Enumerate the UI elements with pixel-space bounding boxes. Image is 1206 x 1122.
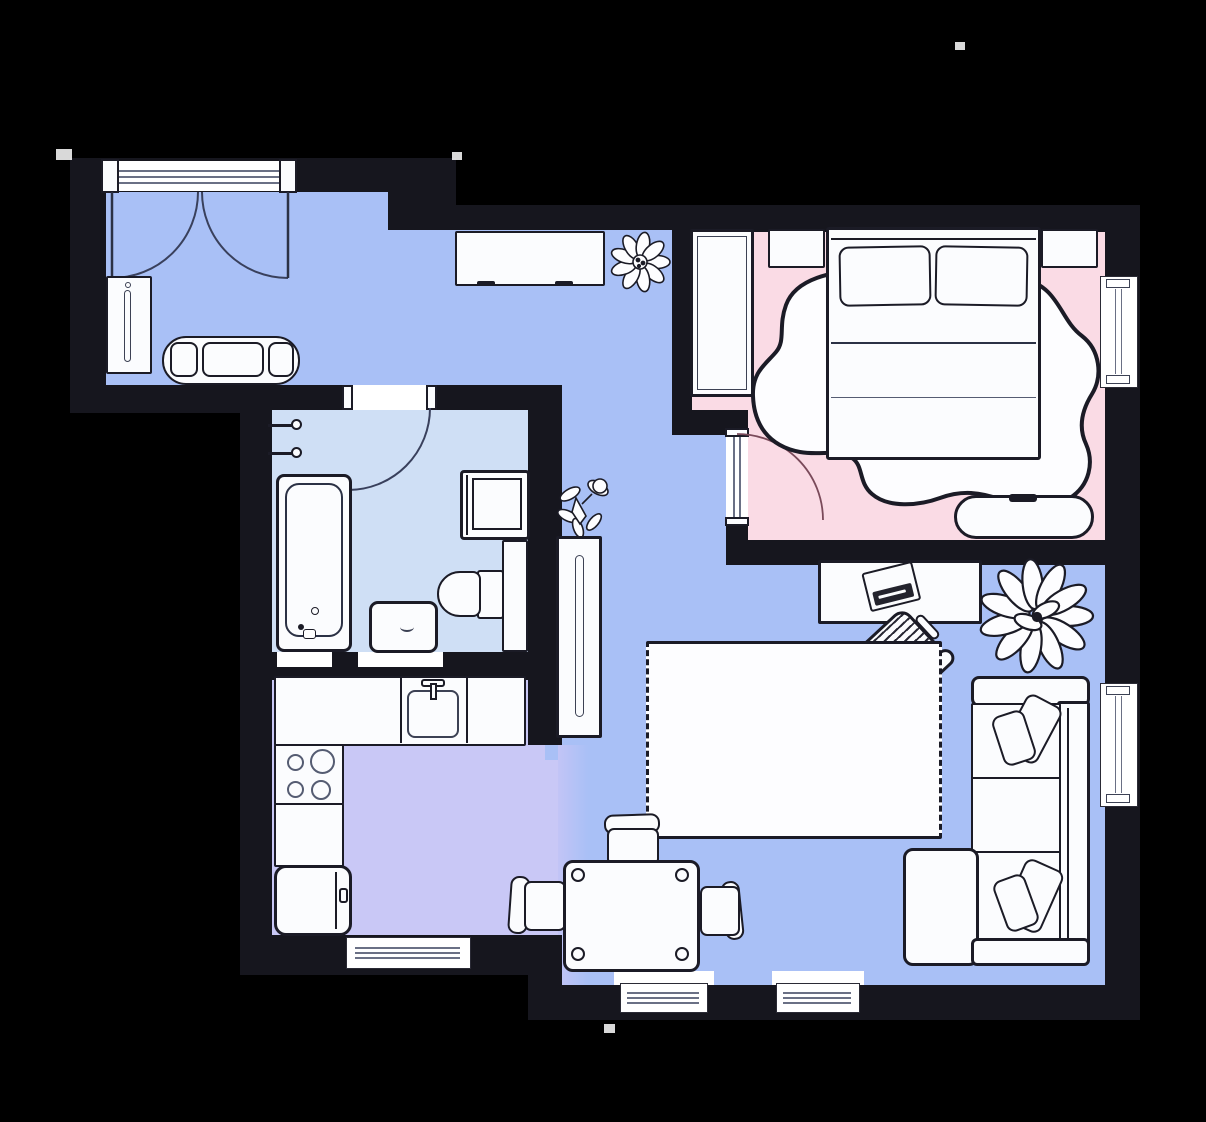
dining-table — [563, 860, 700, 972]
counter-divider — [400, 678, 402, 743]
towel-hook-knob — [291, 419, 302, 430]
table-leg — [675, 868, 689, 882]
table-leg — [571, 868, 585, 882]
bookcase — [556, 536, 602, 738]
bed-blanket-fold — [831, 342, 1036, 344]
sideboard — [455, 231, 605, 286]
bed-pillow-right — [934, 245, 1028, 307]
bench-pad — [202, 342, 264, 377]
bathtub — [276, 474, 352, 652]
chair-seat — [700, 886, 740, 936]
burner — [287, 781, 304, 798]
stove-counter — [274, 744, 344, 805]
fridge — [274, 865, 352, 936]
bed-sheet-line — [831, 397, 1036, 398]
sink-faucet-mark — [400, 622, 414, 632]
double-bed — [826, 227, 1041, 460]
floor-plan — [0, 0, 1206, 1122]
ottoman-bench — [954, 495, 1094, 539]
artifact-speck — [452, 152, 462, 160]
flower-plant-icon — [609, 230, 671, 294]
dining-chair-right — [698, 879, 746, 943]
burner — [287, 754, 304, 771]
bathtub-tap — [298, 624, 304, 630]
sofa-backrest-line — [1067, 708, 1069, 940]
washing-machine-door-line — [466, 475, 468, 535]
large-plant-icon — [976, 556, 1096, 676]
table-leg — [571, 947, 585, 961]
dining-chair-left — [507, 874, 569, 936]
sofa-chaise — [903, 848, 979, 966]
bench-pad — [170, 342, 198, 377]
burner — [311, 780, 331, 800]
kitchen-faucet-stem — [430, 683, 437, 700]
kitchen-lower-counter — [274, 803, 344, 867]
chair-seat — [524, 881, 566, 931]
sofa-seat — [971, 777, 1061, 854]
washing-machine-drum — [472, 478, 522, 530]
bathtub-drain — [311, 607, 319, 615]
sofa-armrest-bottom — [971, 938, 1090, 966]
mirror-cabinet — [106, 276, 152, 374]
living-rug — [646, 641, 942, 839]
sink-vanity — [369, 601, 438, 653]
sideboard-foot — [477, 281, 495, 286]
artifact-speck — [604, 1024, 615, 1033]
ottoman-handle — [1009, 494, 1037, 502]
bench-pad — [268, 342, 294, 377]
artifact-speck — [56, 149, 72, 160]
washing-machine — [460, 470, 530, 540]
mirror-cabinet-rail — [124, 290, 131, 362]
bookcase-door-lens — [575, 555, 584, 717]
towel-hook-knob — [291, 447, 302, 458]
counter-divider — [466, 678, 468, 743]
small-plant-icon — [552, 464, 612, 540]
toilet-bowl — [437, 571, 481, 617]
bed-headboard-line — [831, 238, 1036, 240]
shoe-bench — [162, 336, 300, 385]
table-leg — [675, 947, 689, 961]
fridge-door-line — [335, 872, 337, 929]
toilet-tank — [477, 570, 504, 619]
sideboard-foot — [555, 281, 573, 286]
bathtub-faucet — [303, 629, 316, 639]
sofa-backrest — [1057, 701, 1090, 946]
burner — [310, 749, 335, 774]
bed-pillow-left — [838, 245, 931, 307]
kitchen-sink-counter — [274, 676, 526, 746]
artifact-speck — [955, 42, 965, 50]
bathroom-side-cabinet — [502, 540, 528, 652]
mirror-cabinet-hook — [125, 282, 131, 288]
fridge-handle — [339, 888, 348, 903]
